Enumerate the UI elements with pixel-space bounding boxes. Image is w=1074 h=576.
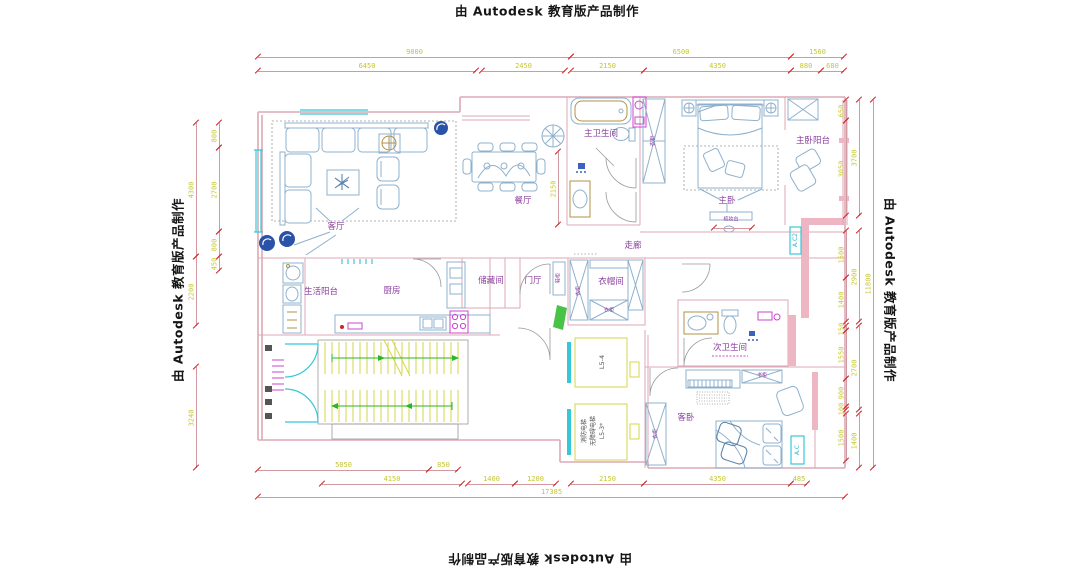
dimension-text: 800 bbox=[212, 238, 219, 251]
dimension-text: 680 bbox=[826, 63, 839, 70]
label-kitchen: 厨房 bbox=[383, 287, 400, 296]
label-foyer: 门厅 bbox=[524, 277, 541, 286]
floor-plan-svg bbox=[0, 0, 1074, 576]
label-corridor: 走廊 bbox=[624, 242, 641, 251]
dimension-text: 5050 bbox=[335, 462, 352, 469]
dimension-text: 11800 bbox=[866, 273, 873, 294]
dimension-text: 2150 bbox=[599, 63, 616, 70]
dimension-text: 17385 bbox=[541, 489, 562, 496]
dimension-text: 2700 bbox=[852, 360, 859, 377]
label-storage-room: 储藏间 bbox=[478, 277, 504, 286]
dimension-text: 1560 bbox=[809, 49, 826, 56]
dimension-text: 3050 bbox=[839, 160, 846, 177]
label-elevator-2: L5-4 bbox=[599, 355, 606, 369]
dimension-text: 4300 bbox=[189, 182, 196, 199]
dimension-text: 6450 bbox=[359, 63, 376, 70]
label-guest-wardrobe: 衣柜 bbox=[654, 429, 659, 439]
dimension-text: 6500 bbox=[673, 49, 690, 56]
dimension-text: 450 bbox=[212, 258, 219, 271]
label-master-bedroom: 主卧 bbox=[718, 197, 735, 206]
dimension-text: 3240 bbox=[189, 409, 196, 426]
master-balcony bbox=[788, 99, 822, 193]
label-elevator-1b: 无障碍电梯 bbox=[591, 416, 597, 446]
dimension-text: 880 bbox=[800, 63, 813, 70]
label-elevator-1a: 消防电梯 bbox=[582, 419, 588, 443]
dimension-text: 4350 bbox=[709, 476, 726, 483]
dimension-text: 2450 bbox=[515, 63, 532, 70]
dimension-text: 800 bbox=[212, 129, 219, 142]
stairs bbox=[265, 340, 468, 439]
dimension-text: 2150 bbox=[599, 476, 616, 483]
dimension-text: 1400 bbox=[839, 292, 846, 309]
label-cloakroom-wardrobe-bottom: 衣柜 bbox=[604, 309, 614, 314]
dimension-text: 850 bbox=[437, 462, 450, 469]
label-dining-room: 餐厅 bbox=[514, 197, 531, 206]
label-shoe-cabinet: 鞋柜 bbox=[557, 273, 562, 283]
master-bedroom bbox=[682, 100, 778, 232]
label-master-closet: 衣柜 bbox=[651, 135, 657, 146]
dimension-text: 1400 bbox=[483, 476, 500, 483]
label-guest-bookcase: 书柜 bbox=[757, 374, 767, 379]
label-service-balcony: 生活阳台 bbox=[304, 288, 338, 297]
dimension-text: 4150 bbox=[384, 476, 401, 483]
dimension-text: 2150 bbox=[551, 180, 558, 197]
dimension-text: 2900 bbox=[852, 268, 859, 285]
dimension-text: 1500 bbox=[839, 429, 846, 446]
label-cloakroom-wardrobe-left: 衣柜 bbox=[577, 286, 582, 296]
dimension-text: 900 bbox=[839, 387, 846, 400]
label-elevator-1c: L5-3* bbox=[600, 423, 606, 439]
kitchen bbox=[335, 259, 490, 333]
dimension-text: 1200 bbox=[527, 476, 544, 483]
label-guest-bedroom: 客卧 bbox=[677, 414, 694, 423]
label-ac-corridor: A.C2 bbox=[793, 233, 799, 247]
label-living-room: 客厅 bbox=[327, 223, 344, 232]
second-bathroom bbox=[684, 310, 780, 366]
label-cloakroom: 衣帽间 bbox=[598, 278, 624, 287]
dimension-text: 650 bbox=[839, 104, 846, 117]
dimension-text: 1400 bbox=[852, 433, 859, 450]
dimension-text: 3700 bbox=[852, 150, 859, 167]
living-room bbox=[272, 121, 456, 255]
dimension-text: 2200 bbox=[189, 283, 196, 300]
service-balcony bbox=[283, 263, 303, 333]
dimension-text: 1500 bbox=[839, 246, 846, 263]
drawing-sheet: 由 Autodesk 教育版产品制作 由 Autodesk 教育版产品制作 由 … bbox=[0, 0, 1074, 576]
label-master-bathroom: 主卫生间 bbox=[584, 130, 618, 139]
corridor-doors bbox=[682, 264, 710, 292]
dimension-text: 485 bbox=[793, 476, 806, 483]
dimension-text: 1550 bbox=[839, 347, 846, 364]
dimension-text: 4350 bbox=[709, 63, 726, 70]
label-second-bathroom: 次卫生间 bbox=[713, 344, 747, 353]
dimension-text: 9800 bbox=[406, 49, 423, 56]
dimension-text: 2700 bbox=[212, 182, 219, 199]
label-ac-guest: A.C bbox=[795, 445, 801, 455]
label-master-balcony: 主卧阳台 bbox=[796, 137, 830, 146]
label-dressing-table: 梳妆台 bbox=[723, 218, 738, 223]
